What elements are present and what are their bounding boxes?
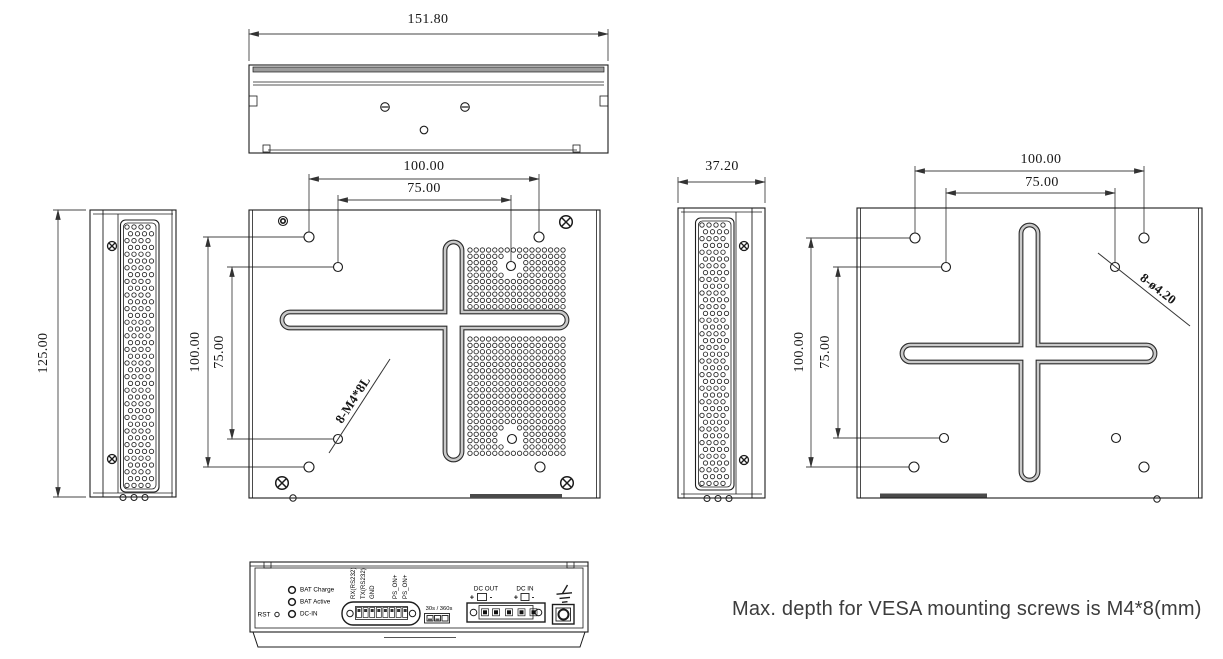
vesa-mounting-dimension-drawing: 151.80 125.00 100.00 75.00 100.00 75.00 … — [0, 0, 1223, 659]
led-indicator — [289, 587, 296, 594]
earth-ground-icon — [557, 585, 573, 602]
slotted-screw-icon — [381, 103, 390, 112]
dc-out-minus-label: - — [490, 593, 493, 602]
led-label-bat-active: BAT Active — [300, 599, 330, 606]
dimension-lines — [53, 29, 1144, 497]
dim-right-width: 37.20 — [705, 159, 739, 175]
dim-rear-vesa75-w: 75.00 — [407, 181, 441, 197]
dc-in-plus-label: + — [514, 593, 518, 602]
alignment-hole — [420, 126, 428, 134]
bottom-lip — [253, 632, 585, 647]
dim-rear-vesa100-h: 100.00 — [188, 332, 204, 373]
dim-plate-vesa100-w: 100.00 — [1021, 152, 1062, 168]
phillips-screw-icon — [560, 216, 573, 229]
vesa-screw-depth-note: Max. depth for VESA mounting screws is M… — [732, 598, 1202, 621]
dim-plate-vesa75-h: 75.00 — [818, 335, 834, 369]
phillips-screw-icon — [740, 242, 749, 251]
rear-view-drawing — [249, 210, 600, 501]
left-side-view-drawing — [90, 210, 176, 501]
vesa-75-holes — [940, 263, 1121, 443]
dim-plate-vesa75-w: 75.00 — [1025, 175, 1059, 191]
terminal-label-gnd: GND — [370, 585, 376, 599]
top-view-drawing — [249, 65, 608, 153]
delay-switch-label: 30s / 360s — [426, 606, 453, 612]
bottom-edge-bar — [470, 494, 562, 498]
phillips-screw-icon — [108, 242, 117, 251]
dim-left-height: 125.00 — [36, 333, 52, 374]
dc-out-label: DC OUT — [474, 586, 498, 593]
delay-dip-switch[interactable] — [425, 614, 450, 624]
right-side-view-drawing — [678, 208, 765, 502]
dc-out-polarity-box — [478, 594, 487, 601]
dc-out-plus-label: + — [470, 593, 474, 602]
terminal-label-tx: TX(RS232) — [361, 568, 367, 599]
drawing-geometry — [0, 0, 1223, 659]
vent-perforation — [125, 225, 154, 488]
led-indicator — [289, 611, 296, 618]
vent-perforation — [468, 248, 565, 309]
dim-plate-vesa100-h: 100.00 — [792, 332, 808, 373]
phillips-screw-icon — [740, 456, 749, 465]
terminal-label-ps-on-2: PS_ON+ — [403, 575, 409, 599]
terminal-label-rx: RX(RS232) — [351, 567, 357, 599]
led-label-dc-in: DC-IN — [300, 611, 318, 618]
bottom-bump — [1154, 496, 1160, 502]
reset-button[interactable] — [275, 612, 279, 616]
led-indicator — [289, 599, 296, 606]
dim-rear-vesa75-h: 75.00 — [212, 335, 228, 369]
leader-lines — [329, 253, 1190, 453]
phillips-screw-icon — [108, 455, 117, 464]
phillips-screw-icon — [561, 477, 574, 490]
antenna-mount-icon — [279, 217, 288, 226]
terminal-label-ps-on-1: PS_ON+ — [393, 575, 399, 599]
dc-in-polarity-box — [521, 594, 529, 601]
vent-perforation — [700, 223, 729, 486]
reset-label: RST — [258, 611, 271, 618]
terminal-block-connector[interactable] — [342, 602, 420, 625]
dc-in-minus-label: - — [532, 593, 535, 602]
dim-rear-vesa100-w: 100.00 — [404, 159, 445, 175]
dc-in-label: DC IN — [516, 586, 533, 593]
bottom-edge-bar — [880, 494, 987, 498]
dim-top-width: 151.80 — [408, 12, 449, 28]
slotted-screw-icon — [461, 103, 470, 112]
led-label-bat-charge: BAT Charge — [300, 587, 334, 594]
vesa-plate-view-drawing — [857, 208, 1202, 502]
phillips-screw-icon — [276, 477, 289, 490]
ground-terminal[interactable] — [553, 605, 575, 625]
